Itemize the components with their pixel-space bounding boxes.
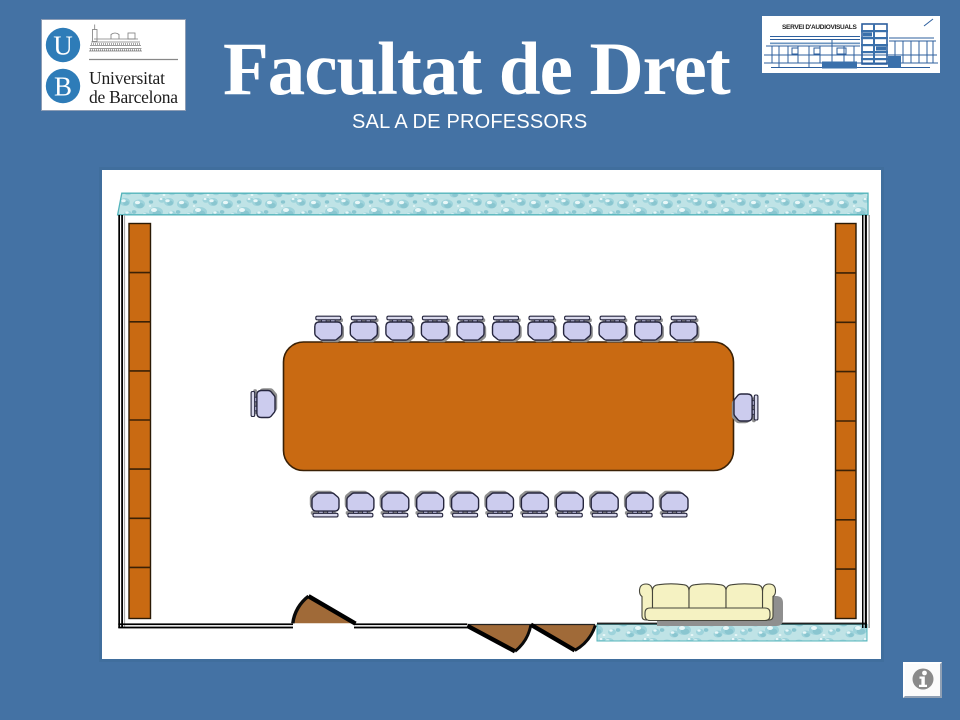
svg-text:B: B bbox=[54, 72, 72, 102]
svg-text:SERVEI D'AUDIOVISUALS: SERVEI D'AUDIOVISUALS bbox=[782, 24, 857, 31]
svg-text:de Barcelona: de Barcelona bbox=[89, 87, 178, 107]
svg-text:Universitat: Universitat bbox=[89, 68, 165, 88]
svg-text:U: U bbox=[53, 31, 73, 61]
